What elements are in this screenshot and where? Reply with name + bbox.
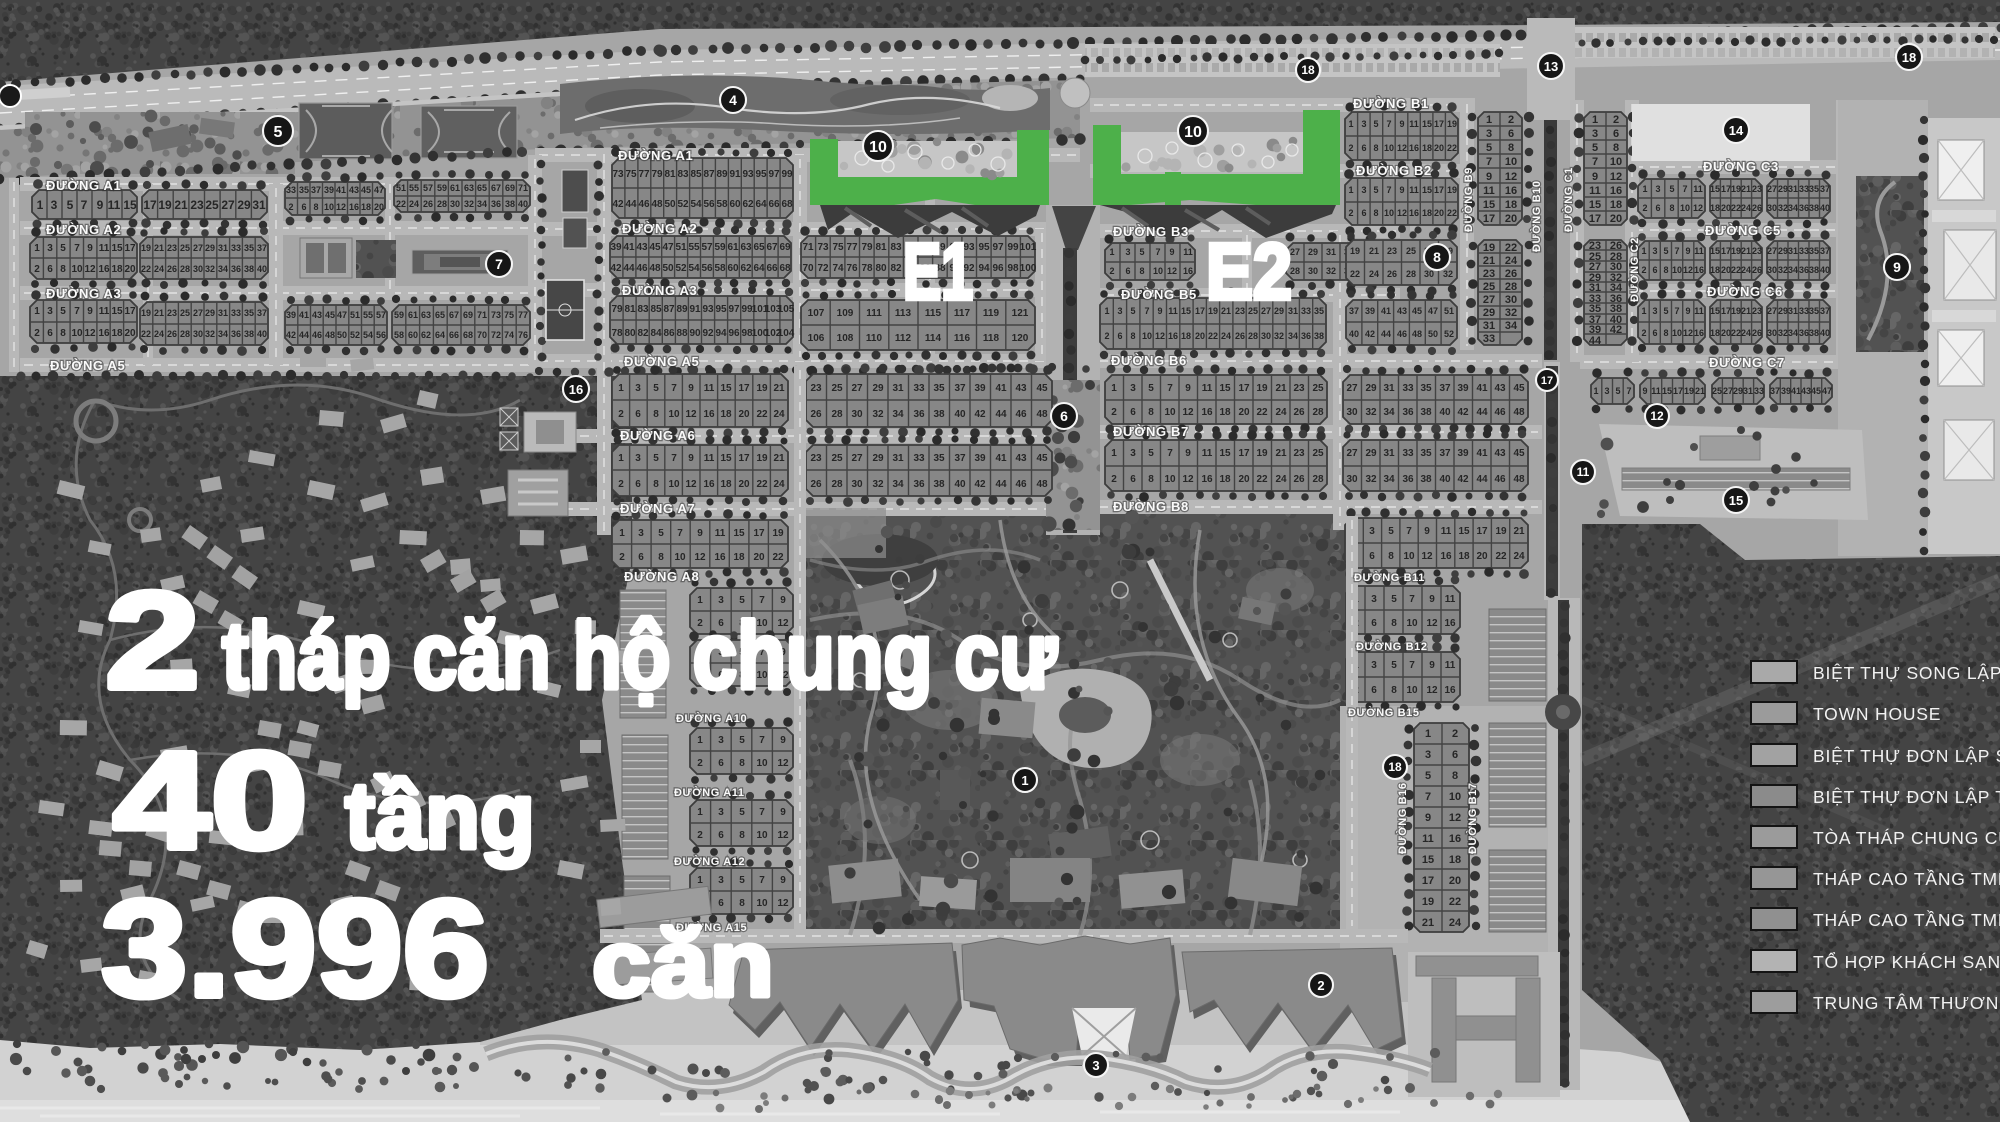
svg-text:36: 36 xyxy=(913,409,925,420)
svg-text:3: 3 xyxy=(1604,386,1609,396)
svg-text:3: 3 xyxy=(1125,247,1130,257)
svg-text:33: 33 xyxy=(1402,448,1414,459)
svg-text:67: 67 xyxy=(491,183,501,193)
svg-text:74: 74 xyxy=(504,330,514,340)
svg-text:7: 7 xyxy=(1167,383,1173,394)
svg-text:8: 8 xyxy=(1663,265,1668,275)
svg-text:39: 39 xyxy=(324,185,334,195)
svg-text:29: 29 xyxy=(205,308,215,318)
svg-text:47: 47 xyxy=(662,242,674,253)
svg-text:32: 32 xyxy=(205,329,215,339)
svg-text:11: 11 xyxy=(1693,184,1703,194)
svg-text:26: 26 xyxy=(1505,268,1517,280)
svg-text:83: 83 xyxy=(677,169,689,180)
svg-text:E1: E1 xyxy=(903,227,973,316)
svg-text:45: 45 xyxy=(1036,453,1048,464)
svg-text:24: 24 xyxy=(409,199,419,209)
svg-text:ĐƯỜNG A2: ĐƯỜNG A2 xyxy=(46,222,121,237)
svg-text:81: 81 xyxy=(664,169,676,180)
svg-text:32: 32 xyxy=(1326,266,1336,276)
svg-text:30: 30 xyxy=(1346,474,1358,485)
svg-text:34: 34 xyxy=(1383,474,1395,485)
svg-text:23: 23 xyxy=(167,308,177,318)
svg-text:58: 58 xyxy=(394,330,404,340)
svg-text:18: 18 xyxy=(1219,407,1231,418)
svg-text:38: 38 xyxy=(1809,265,1819,275)
svg-text:118: 118 xyxy=(983,333,1000,344)
svg-text:11: 11 xyxy=(1589,185,1601,197)
svg-text:47: 47 xyxy=(374,185,384,195)
svg-text:3: 3 xyxy=(1130,383,1136,394)
svg-text:8: 8 xyxy=(653,409,659,420)
svg-text:6: 6 xyxy=(1125,266,1130,276)
svg-text:66: 66 xyxy=(449,330,459,340)
svg-text:38: 38 xyxy=(933,479,945,490)
svg-text:69: 69 xyxy=(779,242,791,253)
svg-text:20: 20 xyxy=(738,409,750,420)
svg-text:5: 5 xyxy=(1669,184,1674,194)
svg-text:36: 36 xyxy=(1799,265,1809,275)
svg-text:2: 2 xyxy=(288,202,293,212)
svg-text:10: 10 xyxy=(1384,208,1394,218)
svg-text:16: 16 xyxy=(1201,407,1213,418)
svg-text:40: 40 xyxy=(518,199,528,209)
svg-text:5: 5 xyxy=(1486,142,1492,154)
svg-text:8: 8 xyxy=(1130,331,1135,341)
svg-text:TRUNG TÂM THƯƠNG M: TRUNG TÂM THƯƠNG M xyxy=(1813,993,2000,1013)
svg-text:50: 50 xyxy=(337,330,347,340)
svg-text:12: 12 xyxy=(777,758,789,769)
svg-text:ĐƯỜNG B2: ĐƯỜNG B2 xyxy=(1356,163,1432,178)
svg-text:35: 35 xyxy=(299,185,309,195)
svg-text:38: 38 xyxy=(244,329,254,339)
svg-text:3: 3 xyxy=(1092,1058,1099,1073)
svg-text:24: 24 xyxy=(1741,328,1751,338)
svg-text:10: 10 xyxy=(869,139,887,156)
svg-text:12: 12 xyxy=(84,328,96,339)
svg-text:8: 8 xyxy=(1663,328,1668,338)
svg-text:41: 41 xyxy=(1476,383,1488,394)
svg-text:44: 44 xyxy=(625,199,637,210)
svg-text:34: 34 xyxy=(1505,320,1518,332)
svg-text:27: 27 xyxy=(851,453,863,464)
svg-text:66: 66 xyxy=(768,199,780,210)
svg-text:64: 64 xyxy=(753,263,765,274)
svg-text:19: 19 xyxy=(1483,242,1495,254)
svg-text:36: 36 xyxy=(491,199,501,209)
svg-text:18: 18 xyxy=(1219,474,1231,485)
svg-text:7: 7 xyxy=(677,528,683,539)
svg-text:5: 5 xyxy=(60,243,66,254)
svg-text:75: 75 xyxy=(832,242,844,253)
svg-text:75: 75 xyxy=(625,169,637,180)
svg-text:43: 43 xyxy=(1801,386,1811,396)
svg-text:ĐƯỜNG B9: ĐƯỜNG B9 xyxy=(1462,167,1475,232)
svg-text:60: 60 xyxy=(729,199,741,210)
svg-text:97: 97 xyxy=(768,169,780,180)
svg-text:38: 38 xyxy=(1809,328,1819,338)
svg-text:35: 35 xyxy=(1809,306,1819,316)
svg-text:30: 30 xyxy=(1505,294,1517,306)
svg-text:3: 3 xyxy=(1486,128,1492,140)
svg-text:12: 12 xyxy=(1182,474,1194,485)
svg-text:41: 41 xyxy=(1381,306,1391,316)
svg-text:26: 26 xyxy=(1752,328,1762,338)
svg-text:12: 12 xyxy=(1693,203,1703,213)
svg-text:32: 32 xyxy=(1365,474,1377,485)
svg-text:20: 20 xyxy=(1721,265,1731,275)
svg-text:37: 37 xyxy=(1820,306,1830,316)
svg-text:33: 33 xyxy=(1483,333,1495,345)
svg-text:92: 92 xyxy=(702,328,714,339)
svg-text:10: 10 xyxy=(756,898,768,909)
svg-text:BIỆT THỰ SONG LẬP: BIỆT THỰ SONG LẬP xyxy=(1813,663,2000,683)
svg-text:3.996: 3.996 xyxy=(101,872,489,1026)
svg-text:32: 32 xyxy=(205,264,215,274)
svg-text:34: 34 xyxy=(218,264,228,274)
svg-text:15: 15 xyxy=(1710,306,1720,316)
svg-text:10: 10 xyxy=(1184,124,1202,141)
svg-text:81: 81 xyxy=(624,304,636,315)
svg-text:10: 10 xyxy=(1406,685,1418,696)
svg-text:3: 3 xyxy=(1371,660,1377,671)
svg-text:24: 24 xyxy=(1449,917,1462,929)
svg-text:9: 9 xyxy=(1185,383,1191,394)
svg-text:45: 45 xyxy=(1811,386,1821,396)
svg-text:15: 15 xyxy=(1710,184,1720,194)
svg-text:1: 1 xyxy=(618,453,624,464)
svg-text:1: 1 xyxy=(1593,386,1598,396)
svg-text:44: 44 xyxy=(995,409,1007,420)
svg-text:38: 38 xyxy=(1809,203,1819,213)
svg-text:23: 23 xyxy=(1293,383,1305,394)
svg-text:1: 1 xyxy=(1425,728,1431,740)
svg-text:44: 44 xyxy=(995,479,1007,490)
svg-text:19: 19 xyxy=(772,528,784,539)
svg-text:77: 77 xyxy=(846,242,858,253)
svg-text:46: 46 xyxy=(638,199,650,210)
svg-text:2: 2 xyxy=(105,564,200,718)
svg-text:70: 70 xyxy=(477,330,487,340)
svg-text:12: 12 xyxy=(1683,328,1693,338)
svg-text:80: 80 xyxy=(624,328,636,339)
svg-text:43: 43 xyxy=(1494,448,1506,459)
svg-text:27: 27 xyxy=(1483,294,1495,306)
svg-text:56: 56 xyxy=(703,199,715,210)
svg-text:16: 16 xyxy=(1449,833,1461,845)
svg-text:11: 11 xyxy=(99,243,110,254)
svg-text:12: 12 xyxy=(777,830,789,841)
svg-text:11: 11 xyxy=(1441,526,1452,537)
svg-text:41: 41 xyxy=(995,383,1007,394)
svg-text:60: 60 xyxy=(408,330,418,340)
svg-text:36: 36 xyxy=(1301,331,1311,341)
svg-text:8: 8 xyxy=(658,552,664,563)
svg-text:61: 61 xyxy=(727,242,739,253)
svg-text:41: 41 xyxy=(623,242,635,253)
svg-text:41: 41 xyxy=(1791,386,1801,396)
svg-text:91: 91 xyxy=(729,169,741,180)
svg-text:7: 7 xyxy=(1167,448,1173,459)
svg-text:10: 10 xyxy=(674,552,686,563)
svg-text:20: 20 xyxy=(1238,407,1250,418)
svg-text:35: 35 xyxy=(1809,184,1819,194)
svg-text:10: 10 xyxy=(1142,331,1152,341)
svg-text:25: 25 xyxy=(180,308,190,318)
svg-text:76: 76 xyxy=(518,330,528,340)
svg-text:28: 28 xyxy=(831,479,843,490)
svg-text:42: 42 xyxy=(974,409,986,420)
svg-text:7: 7 xyxy=(1674,246,1679,256)
svg-text:9: 9 xyxy=(1685,306,1690,316)
svg-text:30: 30 xyxy=(851,409,863,420)
svg-text:27: 27 xyxy=(1723,386,1733,396)
svg-text:89: 89 xyxy=(716,169,728,180)
svg-text:44: 44 xyxy=(299,330,309,340)
svg-text:39: 39 xyxy=(1781,386,1791,396)
svg-text:1: 1 xyxy=(1111,383,1117,394)
svg-text:4: 4 xyxy=(729,92,737,108)
svg-text:tháp căn hộ chung cư: tháp căn hộ chung cư xyxy=(222,603,1057,709)
svg-text:27: 27 xyxy=(1767,246,1777,256)
svg-text:9: 9 xyxy=(1157,306,1162,316)
svg-text:2: 2 xyxy=(34,328,40,339)
svg-text:57: 57 xyxy=(423,183,433,193)
svg-text:11: 11 xyxy=(1183,247,1193,257)
svg-text:33: 33 xyxy=(1754,386,1764,396)
svg-text:7: 7 xyxy=(671,453,677,464)
svg-text:37: 37 xyxy=(257,243,267,253)
svg-text:62: 62 xyxy=(740,263,752,274)
svg-text:59: 59 xyxy=(394,310,404,320)
svg-text:69: 69 xyxy=(463,310,473,320)
svg-text:16: 16 xyxy=(1440,551,1452,562)
svg-text:40: 40 xyxy=(954,409,966,420)
svg-text:ĐƯỜNG A5: ĐƯỜNG A5 xyxy=(624,354,699,369)
svg-text:7: 7 xyxy=(1626,386,1631,396)
svg-text:95: 95 xyxy=(978,242,990,253)
svg-text:15: 15 xyxy=(1219,383,1231,394)
svg-text:55: 55 xyxy=(409,183,419,193)
svg-text:6: 6 xyxy=(301,202,306,212)
svg-text:5: 5 xyxy=(1663,246,1668,256)
svg-text:ĐƯỜNG A1: ĐƯỜNG A1 xyxy=(46,178,121,193)
svg-text:27: 27 xyxy=(1767,306,1777,316)
svg-text:42: 42 xyxy=(610,263,622,274)
svg-text:31: 31 xyxy=(1326,247,1336,257)
svg-text:22: 22 xyxy=(1447,143,1457,153)
svg-text:61: 61 xyxy=(408,310,418,320)
svg-text:40: 40 xyxy=(1820,203,1830,213)
svg-text:75: 75 xyxy=(504,310,514,320)
svg-text:17: 17 xyxy=(1422,875,1434,887)
svg-text:18: 18 xyxy=(733,552,745,563)
svg-text:ĐƯỜNG A12: ĐƯỜNG A12 xyxy=(674,855,745,868)
svg-text:42: 42 xyxy=(1457,407,1469,418)
svg-text:17: 17 xyxy=(738,453,750,464)
svg-text:8: 8 xyxy=(1391,685,1397,696)
svg-text:25: 25 xyxy=(1312,383,1324,394)
svg-text:18: 18 xyxy=(1505,199,1517,211)
svg-text:74: 74 xyxy=(832,263,844,274)
svg-text:6: 6 xyxy=(1130,474,1136,485)
svg-text:30: 30 xyxy=(193,329,203,339)
svg-text:10: 10 xyxy=(1449,791,1461,803)
svg-text:33: 33 xyxy=(913,383,925,394)
svg-text:ĐƯỜNG A3: ĐƯỜNG A3 xyxy=(46,286,121,301)
svg-text:10: 10 xyxy=(756,830,768,841)
svg-text:46: 46 xyxy=(1494,407,1506,418)
svg-text:42: 42 xyxy=(1457,474,1469,485)
svg-text:32: 32 xyxy=(872,409,884,420)
svg-text:64: 64 xyxy=(435,330,445,340)
svg-text:48: 48 xyxy=(1036,479,1048,490)
svg-text:3: 3 xyxy=(1117,306,1122,316)
svg-text:30: 30 xyxy=(1308,266,1318,276)
svg-text:94: 94 xyxy=(978,263,990,274)
svg-text:29: 29 xyxy=(1365,448,1377,459)
svg-text:33: 33 xyxy=(913,453,925,464)
svg-text:6: 6 xyxy=(47,264,53,275)
svg-text:31: 31 xyxy=(892,453,904,464)
svg-text:18: 18 xyxy=(111,328,123,339)
svg-text:63: 63 xyxy=(740,242,752,253)
svg-text:7: 7 xyxy=(74,243,80,254)
svg-text:48: 48 xyxy=(1036,409,1048,420)
svg-text:1: 1 xyxy=(1348,185,1353,195)
svg-text:20: 20 xyxy=(1610,213,1622,225)
svg-text:50: 50 xyxy=(1428,329,1438,339)
svg-text:16: 16 xyxy=(1201,474,1213,485)
svg-text:7: 7 xyxy=(1592,156,1598,168)
svg-text:55: 55 xyxy=(688,242,700,253)
svg-text:19: 19 xyxy=(1684,386,1694,396)
svg-text:31: 31 xyxy=(1788,184,1798,194)
svg-text:10: 10 xyxy=(1505,156,1517,168)
svg-text:5: 5 xyxy=(739,807,745,818)
svg-text:7: 7 xyxy=(1425,791,1431,803)
svg-text:5: 5 xyxy=(739,735,745,746)
svg-text:97: 97 xyxy=(992,242,1004,253)
svg-text:58: 58 xyxy=(714,263,726,274)
svg-text:25: 25 xyxy=(1483,281,1495,293)
svg-text:7: 7 xyxy=(1406,526,1412,537)
svg-text:42: 42 xyxy=(286,330,296,340)
svg-text:59: 59 xyxy=(437,183,447,193)
svg-text:9: 9 xyxy=(1592,171,1598,183)
svg-text:9: 9 xyxy=(1185,448,1191,459)
svg-text:38: 38 xyxy=(505,199,515,209)
svg-text:35: 35 xyxy=(1420,383,1432,394)
svg-text:16: 16 xyxy=(714,552,726,563)
svg-text:94: 94 xyxy=(715,328,727,339)
svg-text:43: 43 xyxy=(349,185,359,195)
svg-text:100: 100 xyxy=(1020,263,1037,274)
svg-text:45: 45 xyxy=(1513,383,1525,394)
svg-text:5: 5 xyxy=(1425,770,1431,782)
svg-text:10: 10 xyxy=(1384,143,1394,153)
svg-text:11: 11 xyxy=(1202,383,1213,394)
svg-text:16: 16 xyxy=(1694,265,1704,275)
svg-text:12: 12 xyxy=(1167,266,1177,276)
svg-text:5: 5 xyxy=(1615,386,1620,396)
svg-text:93: 93 xyxy=(702,304,714,315)
svg-text:ĐƯỜNG A7: ĐƯỜNG A7 xyxy=(620,501,695,516)
svg-text:23: 23 xyxy=(1387,246,1397,256)
svg-text:29: 29 xyxy=(1778,184,1788,194)
svg-text:68: 68 xyxy=(779,263,791,274)
svg-text:32: 32 xyxy=(1274,331,1284,341)
svg-text:6: 6 xyxy=(1361,143,1366,153)
svg-text:37: 37 xyxy=(1439,383,1451,394)
svg-text:18: 18 xyxy=(1422,208,1432,218)
svg-text:23: 23 xyxy=(1752,184,1762,194)
svg-text:47: 47 xyxy=(1428,306,1438,316)
svg-text:10: 10 xyxy=(71,328,83,339)
svg-text:50: 50 xyxy=(662,263,674,274)
svg-text:ĐƯỜNG B5: ĐƯỜNG B5 xyxy=(1121,287,1197,302)
svg-text:6: 6 xyxy=(638,552,644,563)
svg-text:17: 17 xyxy=(124,306,136,317)
svg-text:38: 38 xyxy=(933,409,945,420)
svg-text:12: 12 xyxy=(694,552,706,563)
svg-text:12: 12 xyxy=(777,898,789,909)
svg-text:35: 35 xyxy=(933,453,945,464)
svg-text:97: 97 xyxy=(728,304,740,315)
svg-text:71: 71 xyxy=(802,242,814,253)
svg-text:32: 32 xyxy=(1778,328,1788,338)
svg-text:34: 34 xyxy=(1788,328,1798,338)
svg-text:25: 25 xyxy=(831,383,843,394)
svg-text:21: 21 xyxy=(174,198,188,212)
svg-text:58: 58 xyxy=(716,199,728,210)
svg-text:25: 25 xyxy=(1712,386,1722,396)
svg-text:16: 16 xyxy=(1409,208,1419,218)
svg-text:29: 29 xyxy=(1483,307,1495,319)
svg-text:10: 10 xyxy=(1153,266,1163,276)
svg-text:21: 21 xyxy=(1483,255,1495,267)
svg-text:15: 15 xyxy=(733,528,745,539)
svg-text:43: 43 xyxy=(1494,383,1506,394)
svg-text:67: 67 xyxy=(449,310,459,320)
svg-text:24: 24 xyxy=(1275,407,1287,418)
svg-text:9: 9 xyxy=(1486,171,1492,183)
svg-text:5: 5 xyxy=(60,306,66,317)
svg-text:12: 12 xyxy=(685,479,697,490)
svg-text:3: 3 xyxy=(718,735,724,746)
svg-text:22: 22 xyxy=(1505,242,1517,254)
svg-text:32: 32 xyxy=(1505,307,1517,319)
svg-text:34: 34 xyxy=(477,199,487,209)
svg-text:1: 1 xyxy=(1109,247,1114,257)
svg-text:7: 7 xyxy=(1386,185,1391,195)
svg-text:29: 29 xyxy=(1733,386,1743,396)
svg-text:71: 71 xyxy=(477,310,487,320)
svg-text:21: 21 xyxy=(1695,386,1705,396)
svg-text:43: 43 xyxy=(636,242,648,253)
svg-text:ĐƯỜNG A8: ĐƯỜNG A8 xyxy=(624,569,699,584)
svg-text:19: 19 xyxy=(1731,306,1741,316)
svg-text:8: 8 xyxy=(1388,551,1394,562)
svg-text:6: 6 xyxy=(718,898,724,909)
svg-text:27: 27 xyxy=(221,198,235,212)
svg-text:1: 1 xyxy=(34,306,40,317)
svg-text:34: 34 xyxy=(218,329,228,339)
svg-text:21: 21 xyxy=(773,383,785,394)
svg-text:9: 9 xyxy=(87,306,93,317)
svg-text:15: 15 xyxy=(1458,526,1470,537)
svg-text:46: 46 xyxy=(312,330,322,340)
